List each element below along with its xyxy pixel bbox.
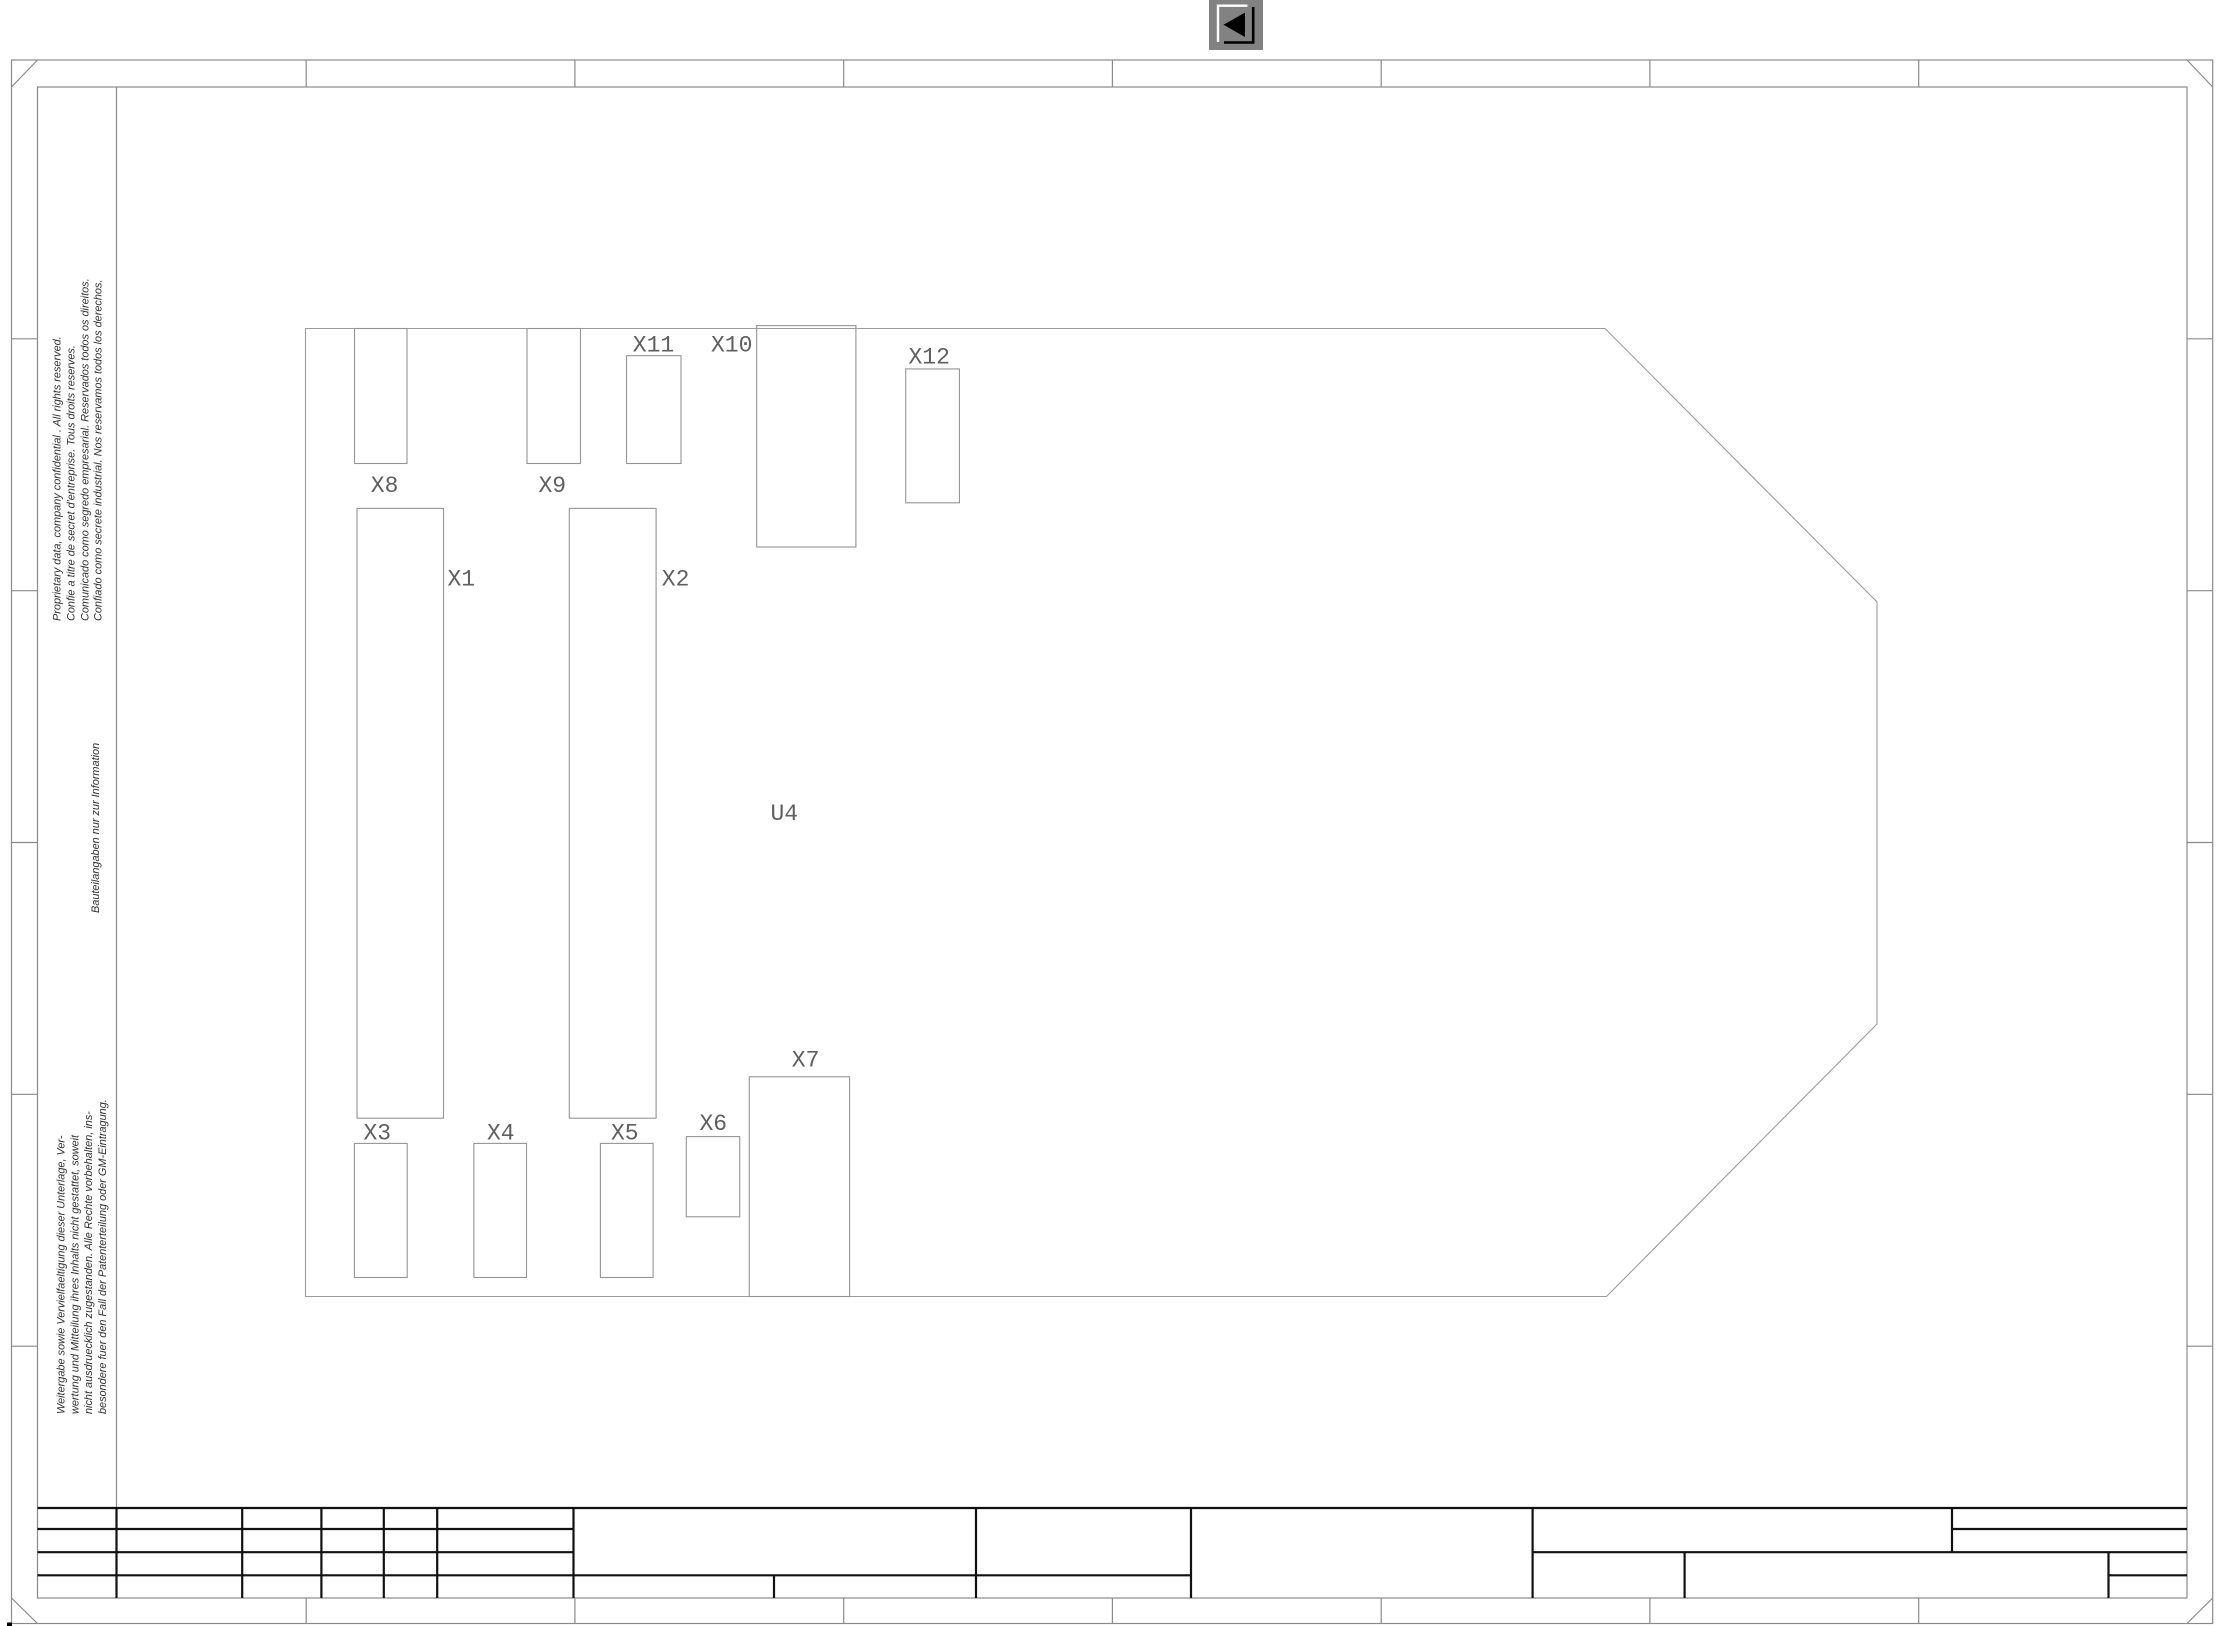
svg-text:X9: X9 — [539, 473, 567, 499]
svg-text:X4: X4 — [487, 1121, 515, 1147]
svg-text:U4: U4 — [771, 801, 799, 827]
svg-text:Weitergabe sowie Vervielfael: Weitergabe sowie Vervielfaeltigung diese… — [56, 1135, 68, 1414]
svg-text:besondere fuer den Fall der Pa: besondere fuer den Fall der Patenterteil… — [97, 1099, 109, 1414]
svg-text:X6: X6 — [700, 1111, 728, 1137]
svg-text:Confie a titre de secret: Confie a titre de secret d'entreprise. T… — [66, 345, 78, 621]
svg-text:Bauteilangaben nur zur Informa: Bauteilangaben nur zur Information — [90, 743, 102, 913]
svg-text:X2: X2 — [662, 567, 690, 593]
svg-text:X5: X5 — [611, 1121, 639, 1147]
svg-text:X8: X8 — [371, 473, 399, 499]
svg-text:X11: X11 — [633, 333, 674, 359]
svg-text:Confiado como secrete industri: Confiado como secrete industrial. Nos re… — [93, 280, 105, 621]
svg-text:X7: X7 — [792, 1048, 820, 1074]
svg-text:X1: X1 — [448, 567, 476, 593]
svg-text:Proprietary data, company c: Proprietary data, company confidential .… — [52, 336, 64, 621]
svg-text:X10: X10 — [711, 333, 752, 359]
svg-text:nicht ausdruecklich zugestand: nicht ausdruecklich zugestanden. Alle Re… — [83, 1111, 95, 1414]
svg-text:Comunicado como segredo empre: Comunicado como segredo empresarial. Res… — [79, 278, 91, 621]
svg-text:X3: X3 — [364, 1121, 392, 1147]
svg-text:wertung und Mitteilung ihres: wertung und Mitteilung ihres Inhalts nic… — [69, 1134, 81, 1414]
svg-text:X12: X12 — [909, 345, 950, 371]
